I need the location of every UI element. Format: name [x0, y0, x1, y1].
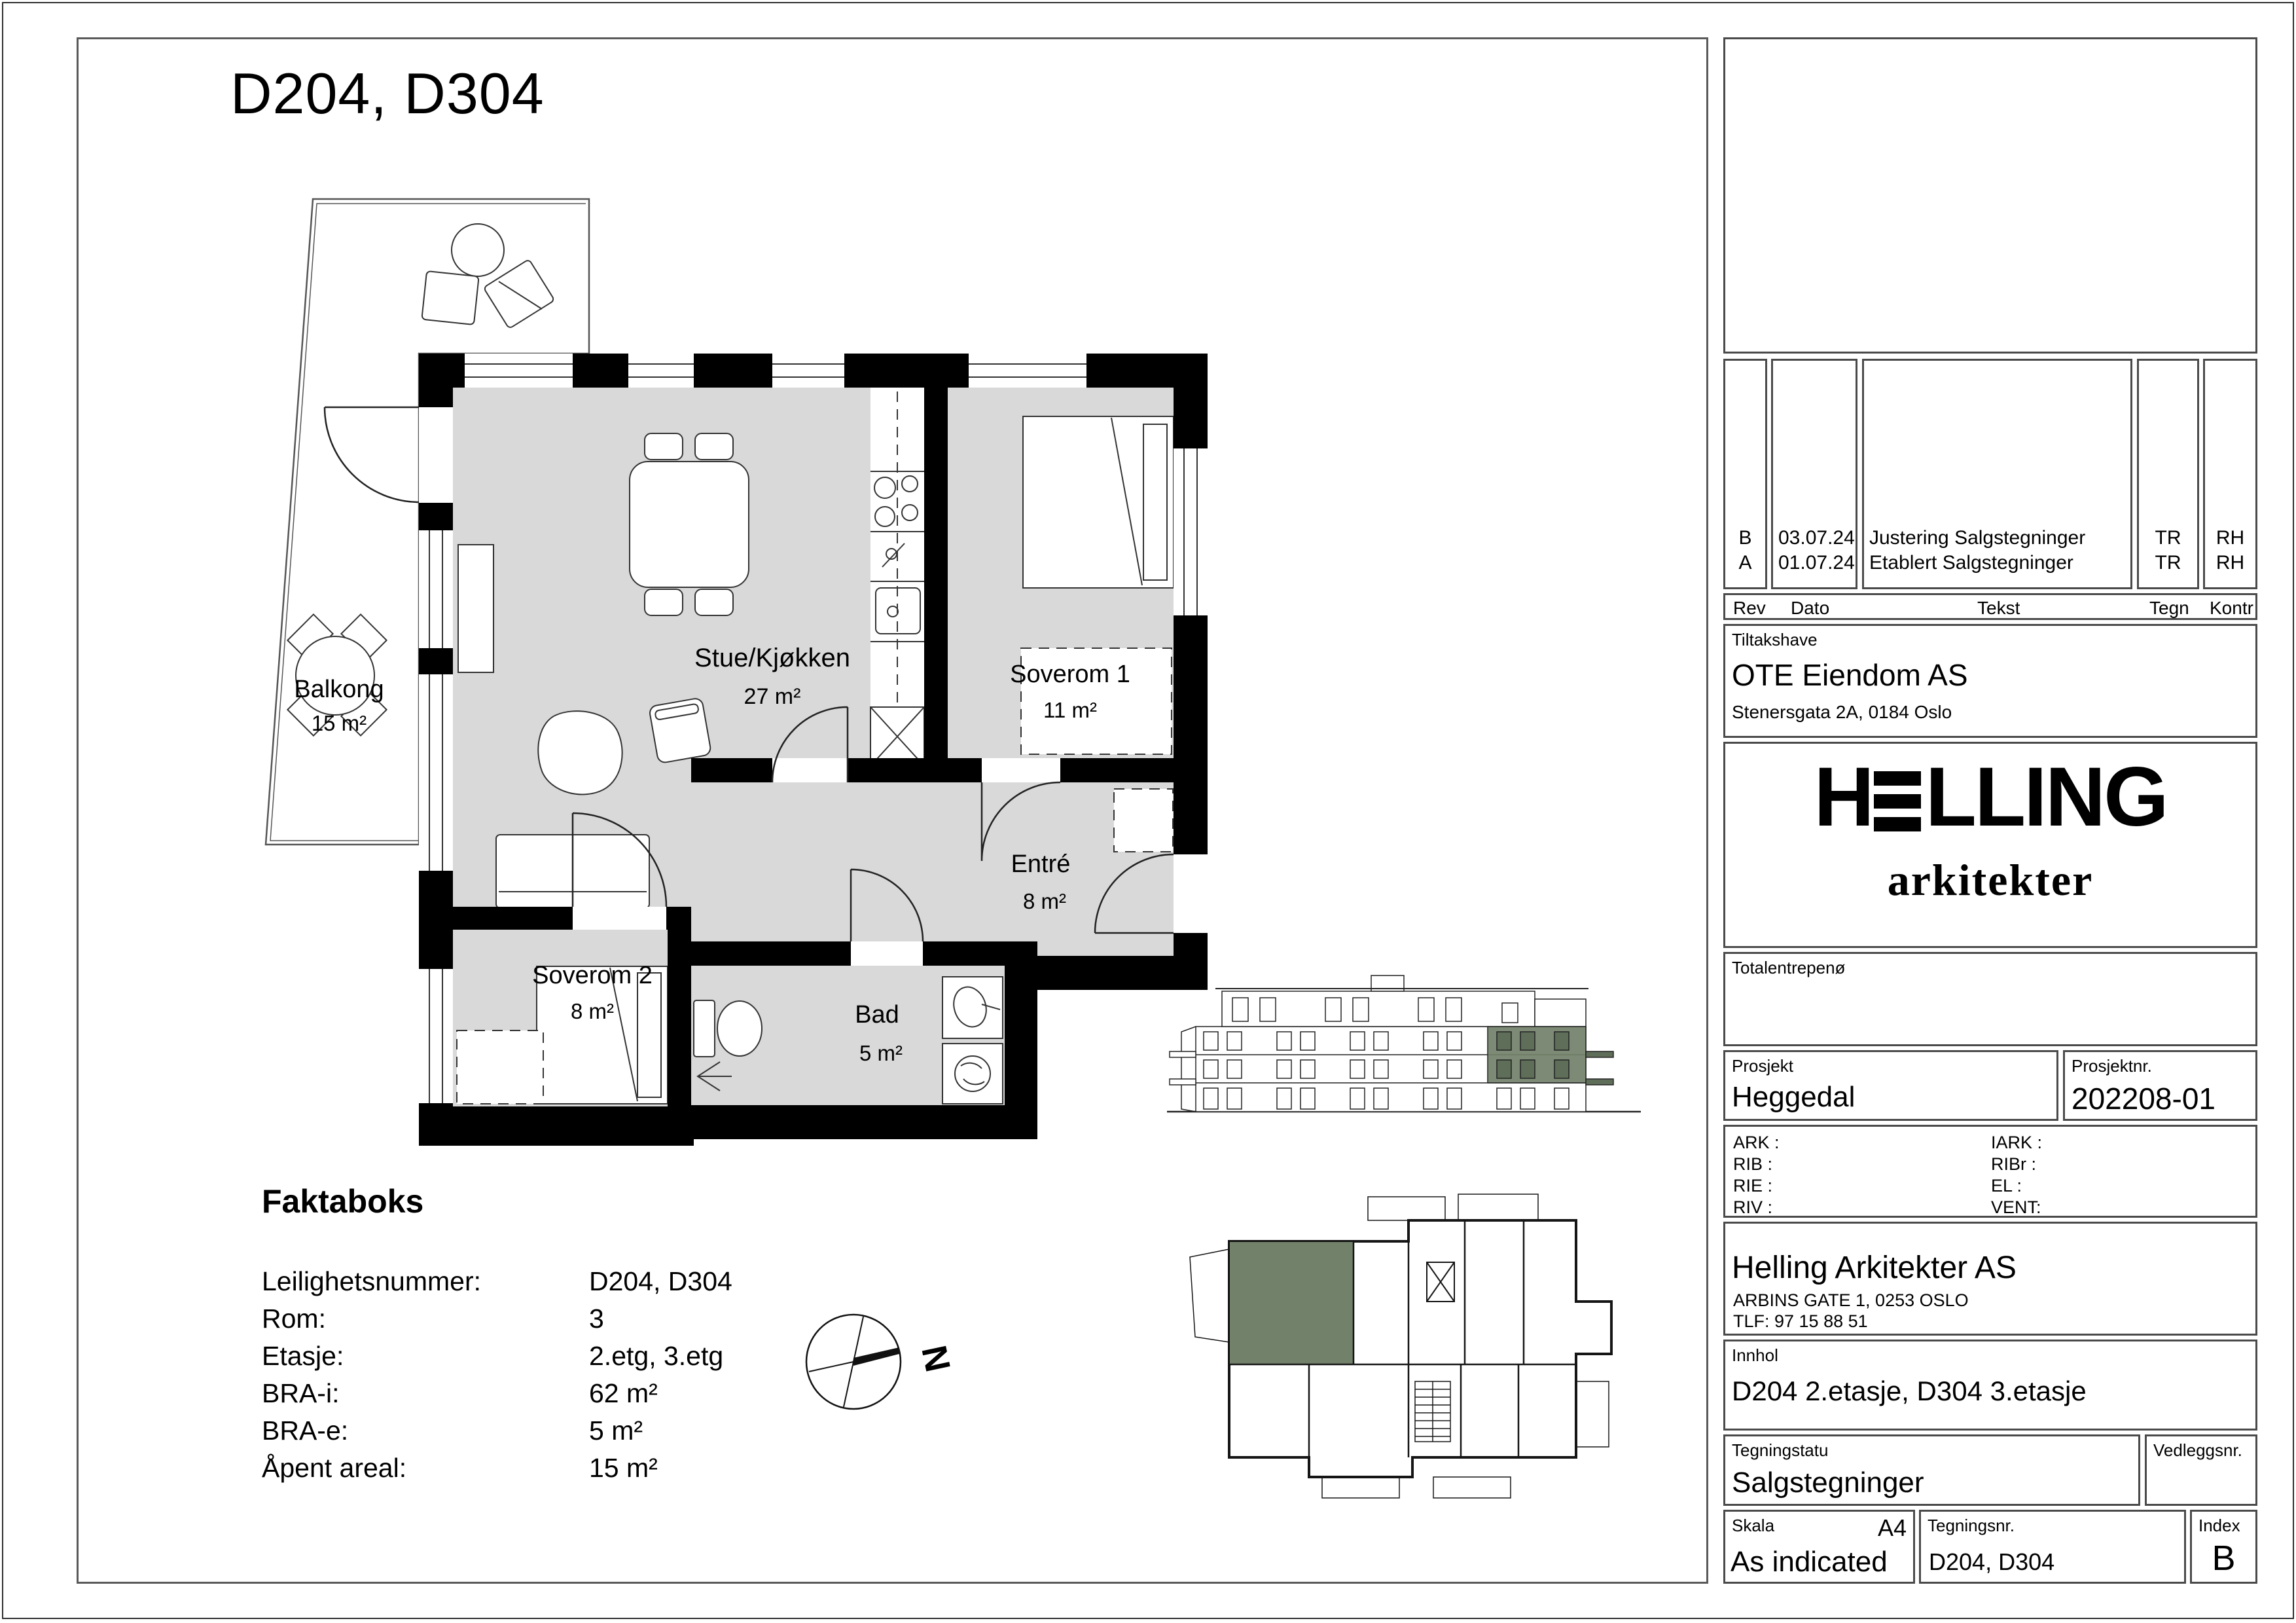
projectno-value: 202208-01	[2072, 1081, 2215, 1116]
contractor-label: Totalentrepenø	[1732, 958, 1845, 978]
room-label-balkong: Balkong	[294, 676, 384, 703]
faktaboks-row-label: BRA-i:	[262, 1378, 589, 1415]
stairs	[1415, 1381, 1450, 1442]
status-box: Tegningstatu Salgstegninger	[1723, 1434, 2140, 1506]
consultant-entry: RIBr :	[1991, 1154, 2249, 1175]
floor-plan: Balkong 15 m² Stue/Kjøkken 27 m² Soverom…	[262, 190, 1230, 1152]
room-label-stue: Stue/Kjøkken	[694, 644, 850, 672]
revision-rev: B	[1725, 526, 1765, 551]
faktaboks-row-label: Åpent areal:	[262, 1453, 589, 1490]
logo-h: H	[1814, 763, 1872, 832]
client-name: OTE Eiendom AS	[1732, 657, 1968, 693]
drawingno-box: Tegningsnr. D204, D304	[1919, 1510, 2186, 1584]
revision-col-tegn: TRTR	[2137, 359, 2199, 589]
faktaboks-row-label: Etasje:	[262, 1341, 589, 1378]
helling-logo: H LLING	[1725, 763, 2255, 832]
faktaboks-rows: Leilighetsnummer:D204, D304Rom:3Etasje:2…	[262, 1266, 772, 1490]
toilet	[694, 1000, 762, 1057]
revision-dato: 03.07.24	[1773, 526, 1856, 551]
faktaboks-row: BRA-e:5 m²	[262, 1415, 772, 1453]
room-area-balkong: 15 m²	[312, 711, 367, 735]
fridge	[870, 707, 924, 766]
revision-header-dato: Dato	[1791, 598, 1829, 619]
drawingno-value: D204, D304	[1929, 1548, 2054, 1576]
architect-address: ARBINS GATE 1, 0253 OSLO	[1733, 1290, 1969, 1311]
building-elevation	[1162, 969, 1646, 1126]
faktaboks-row-label: BRA-e:	[262, 1415, 589, 1453]
index-value: B	[2192, 1538, 2255, 1578]
project-box: Prosjekt Heggedal	[1723, 1050, 2058, 1121]
revision-header-tekst: Tekst	[1977, 598, 2020, 619]
revision-kontr: RH	[2205, 526, 2255, 551]
faktaboks-row-value: 3	[589, 1304, 604, 1341]
attachment-label: Vedleggsnr.	[2153, 1440, 2242, 1461]
coffee-table	[538, 711, 622, 794]
projectno-label: Prosjektnr.	[2072, 1056, 2152, 1076]
logo-rest: LLING	[1926, 763, 2167, 832]
client-address: Stenersgata 2A, 0184 Oslo	[1732, 702, 1952, 723]
consultant-entry: RIB :	[1733, 1154, 1991, 1175]
room-label-soverom1: Soverom 1	[1010, 661, 1130, 688]
room-label-soverom2: Soverom 2	[532, 962, 653, 989]
paper-format: A4	[1878, 1514, 1907, 1542]
revision-col-tekst: Justering SalgstegningerEtablert Salgste…	[1862, 359, 2132, 589]
keyplan-highlight	[1229, 1241, 1354, 1364]
drawing-sheet: { "sheet": { "title": "D204, D304" }, "p…	[0, 0, 2296, 1623]
project-label: Prosjekt	[1732, 1056, 1793, 1076]
consultant-entry: EL :	[1991, 1175, 2249, 1197]
client-label: Tiltakshave	[1732, 630, 1818, 650]
revision-col-kontr: RHRH	[2203, 359, 2257, 589]
projectno-box: Prosjektnr. 202208-01	[2063, 1050, 2257, 1121]
consultants-box: ARK :RIB :RIE :RIV : IARK :RIBr :EL :VEN…	[1723, 1125, 2257, 1218]
faktaboks-row: Etasje:2.etg, 3.etg	[262, 1341, 772, 1378]
architect-name: Helling Arkitekter AS	[1732, 1250, 2017, 1286]
architect-phone: TLF: 97 15 88 51	[1733, 1311, 1868, 1332]
faktaboks-row-value: 15 m²	[589, 1453, 658, 1490]
faktaboks-row: Leilighetsnummer:D204, D304	[262, 1266, 772, 1304]
consultant-entry: ARK :	[1733, 1132, 1991, 1154]
faktaboks-row-value: 5 m²	[589, 1415, 643, 1453]
elevator	[1427, 1262, 1454, 1302]
revision-tegn: TR	[2139, 526, 2197, 551]
room-area-soverom2: 8 m²	[571, 999, 614, 1023]
room-label-bad: Bad	[855, 1001, 899, 1029]
faktaboks-row-value: 62 m²	[589, 1378, 658, 1415]
room-area-bad: 5 m²	[859, 1041, 903, 1065]
consultant-entry: RIE :	[1733, 1175, 1991, 1197]
consultant-entry: IARK :	[1991, 1132, 2249, 1154]
index-box: Index B	[2190, 1510, 2257, 1584]
revision-kontr: RH	[2205, 551, 2255, 575]
titleblock: BA 03.07.2401.07.24 Justering Salgstegni…	[1723, 37, 2257, 1584]
architect-box: Helling Arkitekter AS ARBINS GATE 1, 025…	[1723, 1222, 2257, 1336]
sheet-title: D204, D304	[230, 60, 545, 127]
faktaboks-row-label: Leilighetsnummer:	[262, 1266, 589, 1304]
room-area-entre: 8 m²	[1023, 889, 1066, 913]
status-value: Salgstegninger	[1732, 1467, 1924, 1499]
faktaboks-row: Åpent areal:15 m²	[262, 1453, 772, 1490]
bathroom-sink	[942, 977, 1003, 1038]
revision-header: Rev Dato Tekst Tegn Kontr	[1723, 593, 2257, 620]
faktaboks-title: Faktaboks	[262, 1182, 772, 1220]
scale-value: As indicated	[1731, 1546, 1888, 1578]
content-box: Innhol D204 2.etasje, D304 3.etasje	[1723, 1340, 2257, 1431]
revision-col-rev: BA	[1723, 359, 1767, 589]
revision-tegn: TR	[2139, 551, 2197, 575]
drawingno-label: Tegningsnr.	[1928, 1516, 2015, 1536]
logo-subtitle: arkitekter	[1725, 854, 2255, 906]
faktaboks-row: BRA-i:62 m²	[262, 1378, 772, 1415]
floor-keyplan	[1152, 1185, 1649, 1506]
revision-header-kontr: Kontr	[2210, 598, 2253, 619]
revision-header-rev: Rev	[1733, 598, 1766, 619]
titleblock-empty-box	[1723, 37, 2257, 354]
project-name: Heggedal	[1732, 1081, 1855, 1114]
north-compass: N	[800, 1298, 950, 1429]
client-box: Tiltakshave OTE Eiendom AS Stenersgata 2…	[1723, 624, 2257, 738]
revision-rev: A	[1725, 551, 1765, 575]
logo-e-bars	[1874, 771, 1921, 831]
revision-tekst: Justering Salgstegninger	[1864, 526, 2130, 551]
faktaboks-row: Rom:3	[262, 1304, 772, 1341]
logo-box: H LLING arkitekter	[1723, 742, 2257, 948]
contractor-box: Totalentrepenø	[1723, 952, 2257, 1046]
faktaboks: Faktaboks Leilighetsnummer:D204, D304Rom…	[262, 1182, 772, 1490]
armchair	[649, 697, 711, 763]
wardrobe-soverom2	[457, 1030, 543, 1104]
faktaboks-row-value: 2.etg, 3.etg	[589, 1341, 723, 1378]
wardrobe-entre	[1114, 789, 1173, 852]
revision-tekst: Etablert Salgstegninger	[1864, 551, 2130, 575]
content-value: D204 2.etasje, D304 3.etasje	[1732, 1376, 2087, 1407]
north-letter: N	[914, 1342, 950, 1376]
revision-col-dato: 03.07.2401.07.24	[1771, 359, 1857, 589]
faktaboks-row-label: Rom:	[262, 1304, 589, 1341]
index-label: Index	[2198, 1516, 2240, 1536]
status-label: Tegningstatu	[1732, 1440, 1828, 1461]
scale-label: Skala	[1732, 1516, 1774, 1536]
consultant-entry: VENT:	[1991, 1197, 2249, 1218]
washing-machine	[942, 1044, 1003, 1104]
room-area-stue: 27 m²	[744, 684, 801, 709]
scale-box: Skala A4 As indicated	[1723, 1510, 1915, 1584]
consultants-left: ARK :RIB :RIE :RIV :	[1733, 1132, 1991, 1218]
revision-dato: 01.07.24	[1773, 551, 1856, 575]
consultant-entry: RIV :	[1733, 1197, 1991, 1218]
revision-header-tegn: Tegn	[2149, 598, 2189, 619]
content-label: Innhol	[1732, 1345, 1778, 1366]
tv-bench	[458, 545, 493, 672]
consultants-right: IARK :RIBr :EL :VENT:	[1991, 1132, 2249, 1218]
attachment-box: Vedleggsnr.	[2145, 1434, 2257, 1506]
room-label-entre: Entré	[1011, 850, 1071, 878]
room-area-soverom1: 11 m²	[1043, 698, 1097, 722]
north-needle	[853, 1347, 899, 1366]
faktaboks-row-value: D204, D304	[589, 1266, 732, 1304]
bed-double	[1023, 416, 1174, 588]
